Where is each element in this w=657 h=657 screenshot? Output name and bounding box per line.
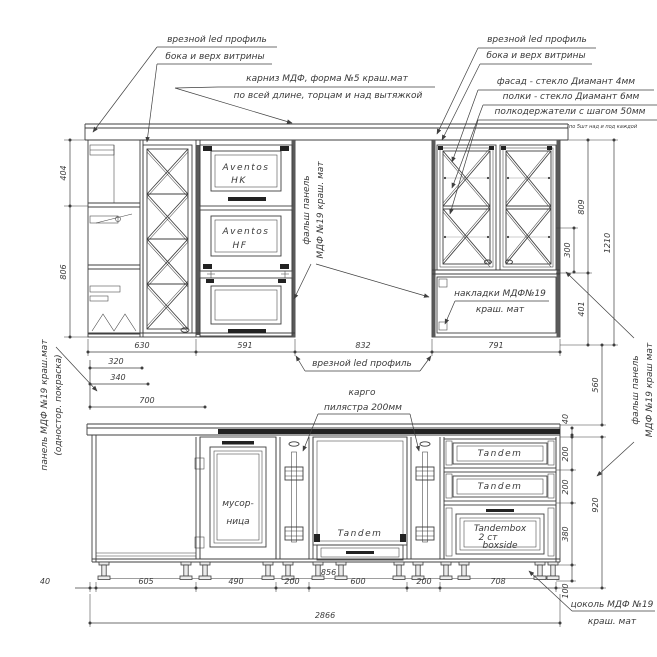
tandem-mid-label: Tandem (338, 529, 383, 539)
false-panel-mid-line2: МДФ №19 краш. мат (316, 161, 326, 259)
kitchen-elevation-drawing: Aventos HK Aventos HF (0, 0, 657, 657)
holders-small-note: (по 5шт над и под каждой (567, 124, 638, 130)
dim-791: 791 (488, 341, 503, 350)
dim-340: 340 (110, 373, 125, 382)
dim-591: 591 (237, 341, 252, 350)
dim-630: 630 (134, 341, 149, 350)
trash-label-line1: мусор- (222, 499, 254, 509)
facade-note: фасад - стекло Диамант 4мм (497, 77, 635, 87)
cargo-note-line1: карго (349, 388, 376, 398)
dim-700: 700 (139, 396, 154, 405)
dim-300: 300 (563, 242, 572, 257)
dim-600: 600 (350, 577, 365, 586)
dim-100: 100 (561, 583, 570, 598)
dim-2866-total: 2866 (315, 611, 335, 620)
dim-605: 605 (138, 577, 153, 586)
led-right-line1: врезной led профиль (487, 35, 587, 45)
dim-560: 560 (591, 377, 600, 392)
plinth-note-line2: краш. мат (588, 617, 637, 627)
aventos-hk-label2: HK (231, 176, 247, 186)
tandembox-label-line3: boxside (483, 541, 518, 551)
tandem-drawer1-label: Tandem (478, 449, 523, 459)
dim-490: 490 (228, 577, 243, 586)
shelves-note: полки - стекло Диамант 6мм (503, 92, 640, 102)
dim-809: 809 (577, 199, 586, 214)
onlay-annotation-line2: краш. мат (476, 305, 525, 315)
dim-708: 708 (490, 577, 505, 586)
annotation-led-mid: врезной led профиль (296, 356, 431, 371)
dim-832: 832 (355, 341, 370, 350)
dim-1210: 1210 (603, 233, 612, 253)
dim-200-bottom-a: 200 (284, 577, 299, 586)
cornice-note-line2: по всей длине, торцам и над вытяжкой (234, 91, 423, 101)
aventos-hf-label2: HF (233, 241, 248, 251)
false-panel-right-line1: фальш панель (631, 355, 641, 424)
panel-left-line1: панель МДФ №19 краш.мат (40, 339, 50, 471)
aventos-hf-label: Aventos (222, 227, 270, 237)
panel-left-line2: (одностор. покраска) (54, 354, 64, 455)
dim-200-right-b: 200 (561, 479, 570, 494)
false-panel-mid-line1: фальш панель (302, 175, 312, 244)
dim-200-bottom-b: 200 (416, 577, 431, 586)
led-right-line2: бока и верх витрины (486, 51, 585, 61)
led-mid-note: врезной led профиль (312, 359, 412, 369)
led-left-line1: врезной led профиль (167, 35, 267, 45)
dim-320: 320 (108, 357, 123, 366)
cargo-note-line2: пилястра 200мм (324, 403, 402, 413)
trash-label-line2: ница (226, 517, 249, 527)
cornice-note-line1: карниз МДФ, форма №5 краш.мат (246, 74, 408, 84)
aventos-hk-label: Aventos (222, 163, 270, 173)
tandem-drawer2-label: Tandem (478, 482, 523, 492)
dim-920: 920 (591, 497, 600, 512)
onlay-annotation-line1: накладки МДФ№19 (454, 289, 546, 299)
dim-380: 380 (561, 526, 570, 541)
dim-404: 404 (59, 165, 68, 180)
false-panel-right-line2: МДФ №19 краш мат (645, 342, 655, 437)
plinth-note-line1: цоколь МДФ №19 (571, 600, 654, 610)
dim-806: 806 (59, 264, 68, 279)
led-left-line2: бока и верх витрины (165, 52, 264, 62)
dim-40-right: 40 (561, 414, 570, 424)
holders-note: полкодержатели с шагом 50мм (495, 107, 646, 117)
dim-200-right-a: 200 (561, 446, 570, 461)
dim-40-bottom: 40 (40, 577, 50, 586)
dim-401: 401 (577, 301, 586, 316)
